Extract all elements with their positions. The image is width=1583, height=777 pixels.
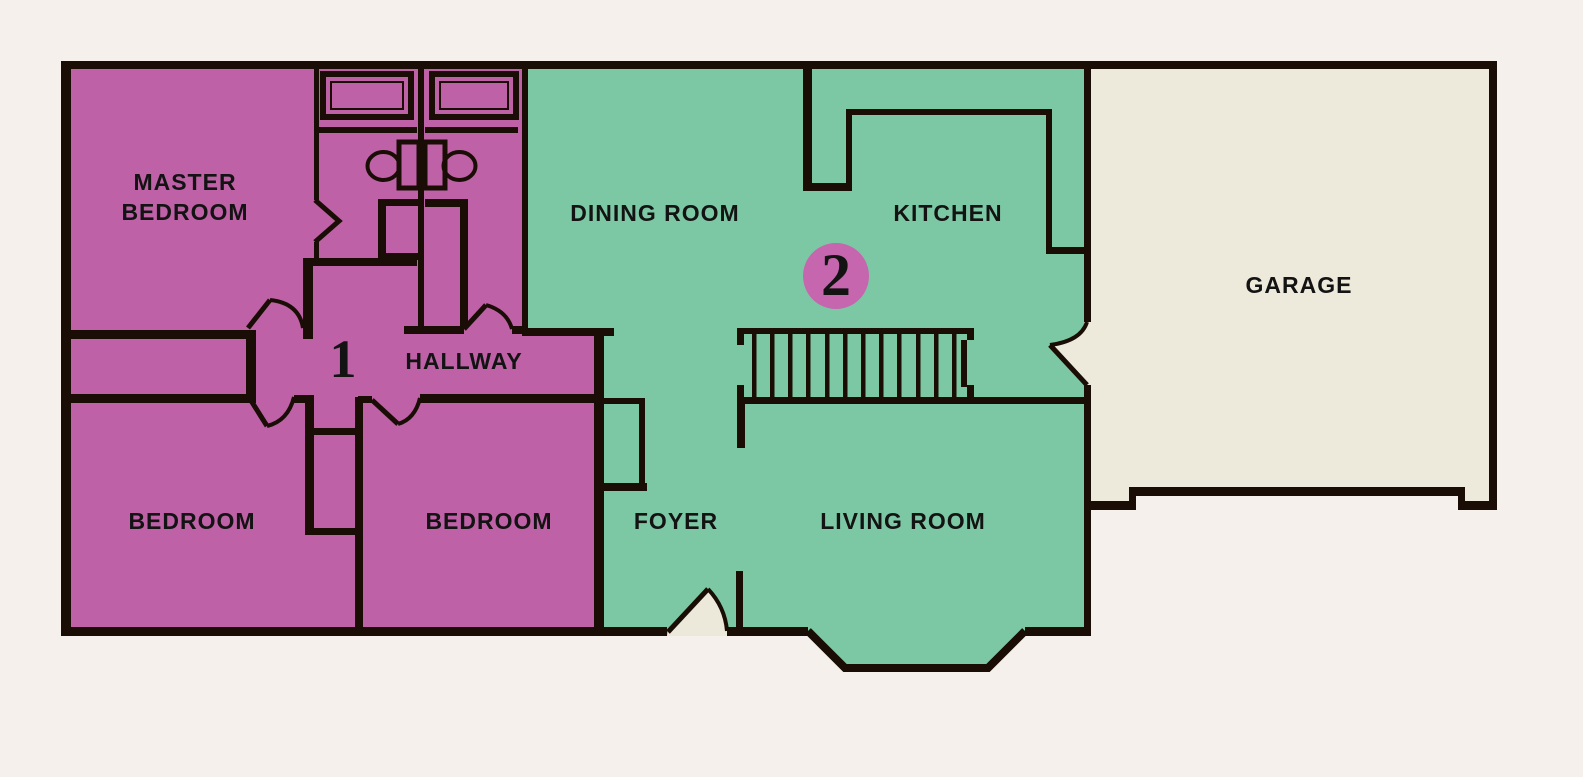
svg-text:BEDROOM: BEDROOM bbox=[425, 508, 552, 534]
svg-text:KITCHEN: KITCHEN bbox=[893, 200, 1002, 226]
svg-text:MASTER: MASTER bbox=[133, 169, 236, 195]
svg-text:FOYER: FOYER bbox=[634, 508, 718, 534]
svg-text:DINING ROOM: DINING ROOM bbox=[570, 200, 739, 226]
svg-text:1: 1 bbox=[330, 329, 357, 389]
svg-text:HALLWAY: HALLWAY bbox=[405, 348, 522, 374]
svg-text:BEDROOM: BEDROOM bbox=[121, 199, 248, 225]
svg-text:GARAGE: GARAGE bbox=[1246, 272, 1353, 298]
svg-text:2: 2 bbox=[821, 242, 851, 308]
svg-text:LIVING ROOM: LIVING ROOM bbox=[820, 508, 986, 534]
svg-text:BEDROOM: BEDROOM bbox=[128, 508, 255, 534]
